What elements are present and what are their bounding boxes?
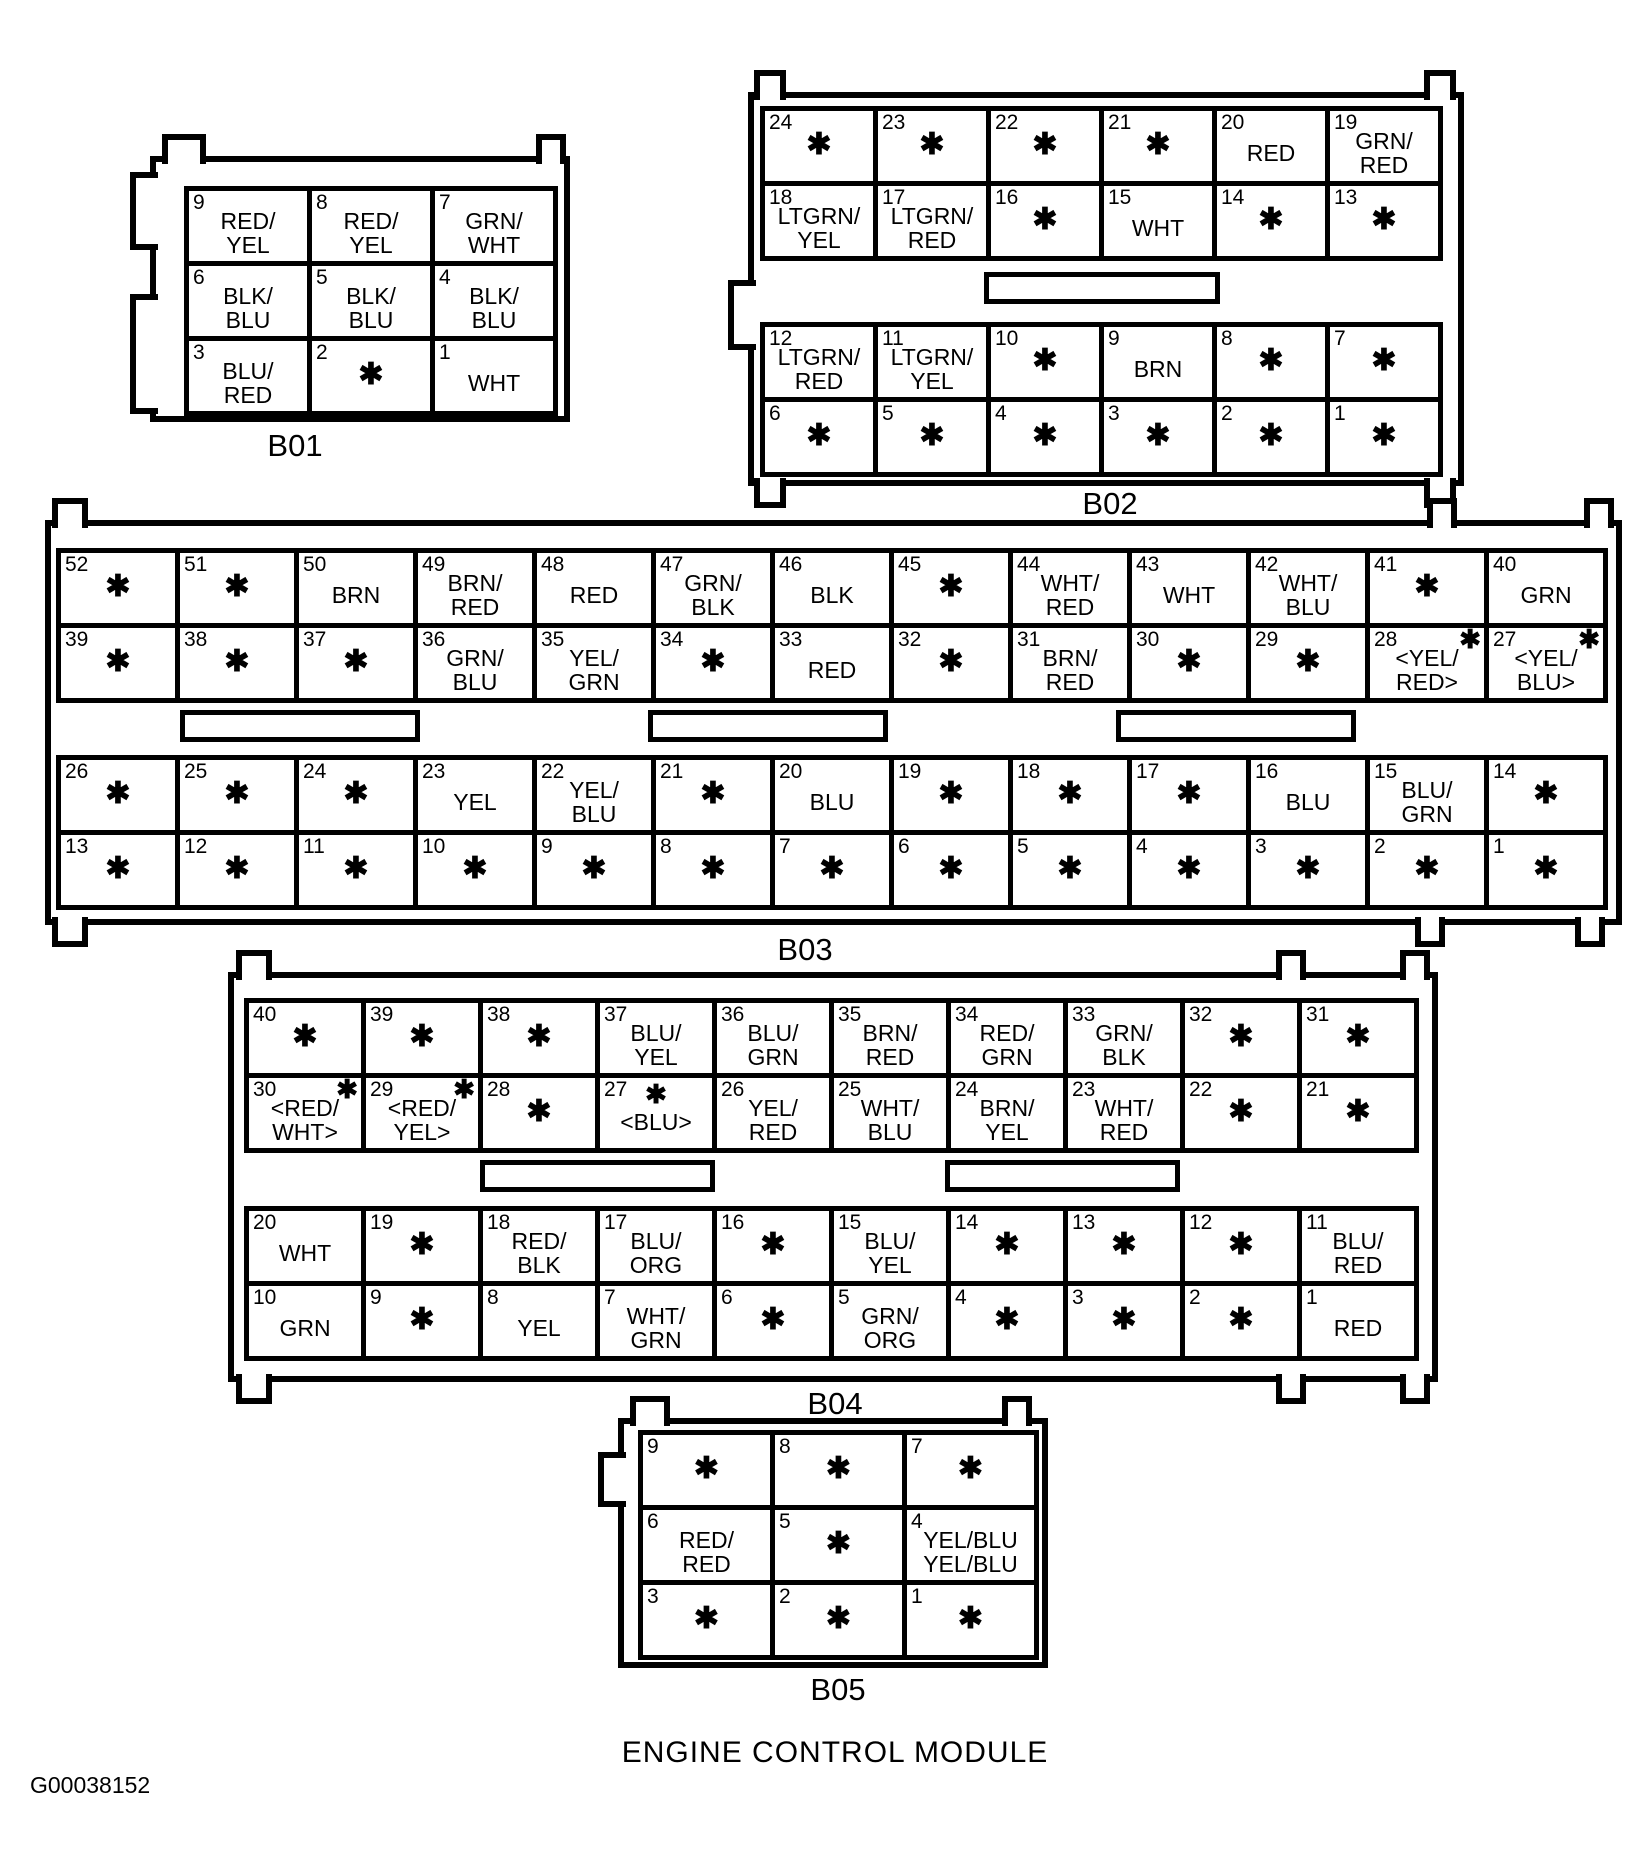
unused-pin-star: ✱	[224, 851, 249, 886]
pin-number: 28	[487, 1078, 510, 1102]
connector-b02-notch	[728, 280, 756, 350]
pin-number: 29	[1255, 628, 1278, 652]
connector-b02-tab	[754, 478, 786, 508]
pin-cell-B03-5: 5✱	[1013, 835, 1127, 905]
pin-cell-B04-4: 4✱	[951, 1286, 1063, 1356]
connector-b03-keyway-slot	[648, 710, 888, 742]
unused-pin-star: ✱	[826, 1451, 851, 1486]
wire-color-label: BLK/BLU	[435, 281, 553, 334]
unused-pin-star: ✱	[1371, 343, 1396, 378]
pin-number: 4	[1136, 835, 1148, 859]
wire-color-label: YEL	[418, 775, 532, 828]
unused-pin-star: ✱	[1228, 1019, 1253, 1054]
pin-cell-B04-25: 25WHT/BLU	[834, 1078, 946, 1148]
unused-pin-star: ✱	[343, 776, 368, 811]
connector-b03-keyway-slot	[180, 710, 420, 742]
connector-b04-tab	[1400, 950, 1430, 980]
pin-number: 22	[995, 111, 1018, 135]
unused-pin-star: ✱	[224, 644, 249, 679]
pin-number: 18	[1017, 760, 1040, 784]
pin-cell-B03-3: 3✱	[1251, 835, 1365, 905]
unused-pin-star: ✱	[1533, 851, 1558, 886]
pin-number: 9	[541, 835, 553, 859]
connector-b03-pin-grid: 26✱25✱24✱23YEL22YEL/BLU21✱20BLU19✱18✱17✱…	[56, 755, 1608, 910]
wire-color-label: WHT/RED	[1013, 568, 1127, 621]
pin-number: 31	[1306, 1003, 1329, 1027]
connector-b02-keyway-slot	[984, 272, 1220, 304]
wire-color-label: LTGRN/YEL	[765, 201, 873, 254]
pin-cell-B04-2: 2✱	[1185, 1286, 1297, 1356]
pin-number: 6	[898, 835, 910, 859]
connector-b03-tab	[1415, 917, 1445, 947]
pin-cell-B04-29: 29✱<RED/YEL>	[366, 1078, 478, 1148]
pin-number: 6	[769, 402, 781, 426]
unused-pin-star: ✱	[105, 776, 130, 811]
pin-number: 32	[1189, 1003, 1212, 1027]
wire-color-label: RED/BLK	[483, 1226, 595, 1279]
pin-cell-B01-1: 1WHT	[435, 341, 553, 411]
pin-cell-B03-2: 2✱	[1370, 835, 1484, 905]
pin-number: 39	[370, 1003, 393, 1027]
pin-cell-B04-28: 28✱	[483, 1078, 595, 1148]
unused-pin-star: ✱	[1111, 1227, 1136, 1262]
wire-color-label: BRN/RED	[1013, 643, 1127, 696]
pin-cell-B04-5: 5GRN/ORG	[834, 1286, 946, 1356]
pin-cell-B04-24: 24BRN/YEL	[951, 1078, 1063, 1148]
pin-cell-B03-41: 41✱	[1370, 553, 1484, 623]
pin-number: 1	[1334, 402, 1346, 426]
pin-cell-B03-44: 44WHT/RED	[1013, 553, 1127, 623]
wire-color-label: WHT/RED	[1068, 1093, 1180, 1146]
pin-number: 8	[660, 835, 672, 859]
unused-pin-star: ✱	[1176, 776, 1201, 811]
wire-color-label: LTGRN/YEL	[878, 342, 986, 395]
unused-pin-star: ✱	[694, 1601, 719, 1636]
wire-color-label: <RED/YEL>	[366, 1093, 478, 1146]
connector-b03-label: B03	[735, 932, 875, 968]
wire-color-label: BLK/BLU	[312, 281, 430, 334]
unused-pin-star: ✱	[1228, 1094, 1253, 1129]
unused-pin-star: ✱	[343, 851, 368, 886]
pin-cell-B04-38: 38✱	[483, 1003, 595, 1073]
pin-cell-B04-11: 11BLU/RED	[1302, 1211, 1414, 1281]
pin-number: 7	[1334, 327, 1346, 351]
unused-pin-star: ✱	[1145, 418, 1170, 453]
pin-cell-B03-21: 21✱	[656, 760, 770, 830]
pin-cell-B03-9: 9✱	[537, 835, 651, 905]
pin-cell-B05-7: 7✱	[907, 1435, 1034, 1505]
pin-cell-B04-22: 22✱	[1185, 1078, 1297, 1148]
pin-cell-B04-34: 34RED/GRN	[951, 1003, 1063, 1073]
wire-color-label: RED/YEL	[312, 206, 430, 259]
unused-pin-star: ✱	[819, 851, 844, 886]
wire-color-label: GRN	[1489, 568, 1603, 621]
wire-color-label: RED	[537, 568, 651, 621]
unused-pin-star: ✱	[645, 1079, 667, 1110]
connector-b04-pin-grid: 40✱39✱38✱37BLU/YEL36BLU/GRN35BRN/RED34RE…	[244, 998, 1419, 1153]
wire-color-label: RED/YEL	[189, 206, 307, 259]
unused-pin-star: ✱	[806, 127, 831, 162]
pin-cell-B03-13: 13✱	[61, 835, 175, 905]
pin-cell-B03-11: 11✱	[299, 835, 413, 905]
pin-cell-B04-40: 40✱	[249, 1003, 361, 1073]
unused-pin-star: ✱	[1057, 851, 1082, 886]
pin-number: 14	[1493, 760, 1516, 784]
pin-number: 3	[1255, 835, 1267, 859]
unused-pin-star: ✱	[292, 1019, 317, 1054]
connector-b02-label: B02	[1040, 486, 1180, 522]
pin-cell-B02-22: 22✱	[991, 111, 1099, 181]
unused-pin-star: ✱	[700, 644, 725, 679]
connector-b03-tab	[1584, 498, 1614, 528]
connector-b04-keyway-slot	[480, 1160, 715, 1192]
unused-pin-star: ✱	[1295, 851, 1320, 886]
connector-b03-keyway-slot	[1116, 710, 1356, 742]
connector-b04-keyway-slot	[945, 1160, 1180, 1192]
wire-color-label: BRN/YEL	[951, 1093, 1063, 1146]
pin-cell-B01-6: 6BLK/BLU	[189, 266, 307, 336]
pin-number: 2	[779, 1585, 791, 1609]
connector-b04-pin-grid: 20WHT19✱18RED/BLK17BLU/ORG16✱15BLU/YEL14…	[244, 1206, 1419, 1361]
pin-cell-B04-13: 13✱	[1068, 1211, 1180, 1281]
pin-cell-B04-23: 23WHT/RED	[1068, 1078, 1180, 1148]
pin-number: 2	[1374, 835, 1386, 859]
pin-cell-B03-35: 35YEL/GRN	[537, 628, 651, 698]
pin-cell-B01-7: 7GRN/WHT	[435, 191, 553, 261]
pin-number: 39	[65, 628, 88, 652]
pin-cell-B02-20: 20RED	[1217, 111, 1325, 181]
unused-pin-star: ✱	[409, 1227, 434, 1262]
pin-cell-B03-50: 50BRN	[299, 553, 413, 623]
pin-number: 52	[65, 553, 88, 577]
pin-cell-B04-37: 37BLU/YEL	[600, 1003, 712, 1073]
connector-b04-tab	[236, 950, 272, 980]
pin-number: 4	[995, 402, 1007, 426]
unused-pin-star: ✱	[409, 1019, 434, 1054]
pin-number: 9	[647, 1435, 659, 1459]
pin-number: 24	[303, 760, 326, 784]
pin-cell-B05-3: 3✱	[643, 1585, 770, 1655]
diagram-title: ENGINE CONTROL MODULE	[500, 1736, 1170, 1770]
wire-color-label: RED	[1217, 126, 1325, 179]
pin-cell-B03-39: 39✱	[61, 628, 175, 698]
pin-cell-B04-31: 31✱	[1302, 1003, 1414, 1073]
connector-b05-tab	[1002, 1396, 1032, 1426]
ecm-pinout-diagram: 9RED/YEL8RED/YEL7GRN/WHT6BLK/BLU5BLK/BLU…	[0, 0, 1631, 1874]
unused-pin-star: ✱	[700, 851, 725, 886]
unused-pin-star: ✱	[1258, 343, 1283, 378]
wire-color-label: RED/GRN	[951, 1018, 1063, 1071]
pin-number: 13	[1072, 1211, 1095, 1235]
pin-number: 3	[1108, 402, 1120, 426]
unused-pin-star: ✱	[105, 851, 130, 886]
unused-pin-star: ✱	[1228, 1302, 1253, 1337]
unused-pin-star: ✱	[1295, 644, 1320, 679]
pin-cell-B04-26: 26YEL/RED	[717, 1078, 829, 1148]
unused-pin-star: ✱	[105, 644, 130, 679]
pin-number: 9	[370, 1286, 382, 1310]
wire-color-label: BLU/RED	[1302, 1226, 1414, 1279]
pin-cell-B02-17: 17LTGRN/RED	[878, 186, 986, 256]
pin-cell-B03-1: 1✱	[1489, 835, 1603, 905]
pin-number: 7	[779, 835, 791, 859]
pin-number: 21	[1108, 111, 1131, 135]
pin-cell-B03-52: 52✱	[61, 553, 175, 623]
pin-cell-B03-49: 49BRN/RED	[418, 553, 532, 623]
pin-cell-B03-10: 10✱	[418, 835, 532, 905]
pin-number: 19	[898, 760, 921, 784]
wire-color-label: BLU/YEL	[600, 1018, 712, 1071]
unused-pin-star: ✱	[1345, 1094, 1370, 1129]
wire-color-label: <RED/WHT>	[249, 1093, 361, 1146]
pin-number: 22	[1189, 1078, 1212, 1102]
pin-number: 21	[1306, 1078, 1329, 1102]
wire-color-label: YEL/GRN	[537, 643, 651, 696]
pin-cell-B02-6: 6✱	[765, 402, 873, 472]
pin-cell-B04-9: 9✱	[366, 1286, 478, 1356]
pin-cell-B02-21: 21✱	[1104, 111, 1212, 181]
wire-color-label: BLK/BLU	[189, 281, 307, 334]
pin-number: 1	[1493, 835, 1505, 859]
unused-pin-star: ✱	[1228, 1227, 1253, 1262]
connector-b04-tab	[236, 1374, 272, 1404]
connector-b01-tab	[536, 134, 566, 164]
connector-b03-tab	[1427, 498, 1457, 528]
unused-pin-star: ✱	[919, 418, 944, 453]
pin-cell-B04-17: 17BLU/ORG	[600, 1211, 712, 1281]
pin-cell-B04-14: 14✱	[951, 1211, 1063, 1281]
unused-pin-star: ✱	[938, 569, 963, 604]
unused-pin-star: ✱	[760, 1302, 785, 1337]
connector-b02-pin-grid: 12LTGRN/RED11LTGRN/YEL10✱9BRN8✱7✱6✱5✱4✱3…	[760, 322, 1443, 477]
wire-color-label: WHT	[1132, 568, 1246, 621]
pin-cell-B05-4: 4YEL/BLUYEL/BLU	[907, 1510, 1034, 1580]
connector-b01-label: B01	[225, 428, 365, 464]
pin-cell-B03-24: 24✱	[299, 760, 413, 830]
pin-cell-B03-27: 27✱<YEL/BLU>	[1489, 628, 1603, 698]
unused-pin-star: ✱	[994, 1227, 1019, 1262]
pin-number: 27	[604, 1078, 627, 1102]
pin-cell-B03-8: 8✱	[656, 835, 770, 905]
unused-pin-star: ✱	[1032, 343, 1057, 378]
unused-pin-star: ✱	[1176, 851, 1201, 886]
pin-number: 11	[303, 835, 325, 859]
unused-pin-star: ✱	[1032, 127, 1057, 162]
pin-number: 16	[995, 186, 1018, 210]
wire-color-label: BLU/GRN	[1370, 775, 1484, 828]
pin-cell-B04-39: 39✱	[366, 1003, 478, 1073]
wire-color-label: BLU/ORG	[600, 1226, 712, 1279]
pin-cell-B03-25: 25✱	[180, 760, 294, 830]
unused-pin-star: ✱	[1032, 418, 1057, 453]
unused-pin-star: ✱	[958, 1601, 983, 1636]
wire-color-label: BLU/YEL	[834, 1226, 946, 1279]
pin-cell-B02-7: 7✱	[1330, 327, 1438, 397]
pin-cell-B02-24: 24✱	[765, 111, 873, 181]
pin-number: 38	[184, 628, 207, 652]
pin-cell-B03-7: 7✱	[775, 835, 889, 905]
connector-b03-tab	[52, 917, 88, 947]
wire-color-label: YEL/RED	[717, 1093, 829, 1146]
wire-color-label: <BLU>	[600, 1110, 712, 1146]
pin-number: 17	[1136, 760, 1159, 784]
pin-number: 8	[1221, 327, 1233, 351]
pin-number: 12	[184, 835, 207, 859]
pin-number: 12	[1189, 1211, 1212, 1235]
pin-cell-B04-19: 19✱	[366, 1211, 478, 1281]
wire-color-label: GRN/BLU	[418, 643, 532, 696]
pin-cell-B01-5: 5BLK/BLU	[312, 266, 430, 336]
pin-cell-B02-23: 23✱	[878, 111, 986, 181]
wire-color-label: RED	[775, 643, 889, 696]
wire-color-label: <YEL/RED>	[1370, 643, 1484, 696]
unused-pin-star: ✱	[526, 1019, 551, 1054]
pin-cell-B04-8: 8YEL	[483, 1286, 595, 1356]
pin-number: 6	[721, 1286, 733, 1310]
unused-pin-star: ✱	[1145, 127, 1170, 162]
wire-color-label: BRN/RED	[834, 1018, 946, 1071]
pin-cell-B01-8: 8RED/YEL	[312, 191, 430, 261]
pin-number: 19	[370, 1211, 393, 1235]
connector-b01-notch	[130, 294, 158, 414]
pin-cell-B04-16: 16✱	[717, 1211, 829, 1281]
pin-number: 21	[660, 760, 683, 784]
pin-number: 41	[1374, 553, 1397, 577]
unused-pin-star: ✱	[526, 1094, 551, 1129]
connector-b02-tab	[754, 70, 786, 100]
connector-b01-pin-grid: 9RED/YEL8RED/YEL7GRN/WHT6BLK/BLU5BLK/BLU…	[184, 186, 558, 416]
pin-number: 10	[422, 835, 445, 859]
wire-color-label: GRN	[249, 1301, 361, 1354]
pin-cell-B01-9: 9RED/YEL	[189, 191, 307, 261]
pin-cell-B04-20: 20WHT	[249, 1211, 361, 1281]
pin-number: 10	[995, 327, 1018, 351]
pin-number: 13	[1334, 186, 1357, 210]
pin-cell-B02-4: 4✱	[991, 402, 1099, 472]
unused-pin-star: ✱	[826, 1601, 851, 1636]
connector-b05-label: B05	[768, 1672, 908, 1708]
pin-number: 1	[911, 1585, 923, 1609]
pin-cell-B05-2: 2✱	[775, 1585, 902, 1655]
pin-number: 14	[1221, 186, 1244, 210]
wire-color-label: BLU	[775, 775, 889, 828]
unused-pin-star: ✱	[694, 1451, 719, 1486]
unused-pin-star: ✱	[938, 644, 963, 679]
pin-cell-B03-15: 15BLU/GRN	[1370, 760, 1484, 830]
wire-color-label: BLU	[1251, 775, 1365, 828]
connector-b03-pin-grid: 52✱51✱50BRN49BRN/RED48RED47GRN/BLK46BLK4…	[56, 548, 1608, 703]
wire-color-label: WHT/BLU	[1251, 568, 1365, 621]
pin-cell-B05-8: 8✱	[775, 1435, 902, 1505]
pin-cell-B04-15: 15BLU/YEL	[834, 1211, 946, 1281]
pin-number: 13	[65, 835, 88, 859]
wire-color-label: LTGRN/RED	[765, 342, 873, 395]
unused-pin-star: ✱	[1533, 776, 1558, 811]
connector-b02-pin-grid: 24✱23✱22✱21✱20RED19GRN/RED18LTGRN/YEL17L…	[760, 106, 1443, 261]
pin-cell-B02-15: 15WHT	[1104, 186, 1212, 256]
pin-cell-B02-1: 1✱	[1330, 402, 1438, 472]
wire-color-label: BRN/RED	[418, 568, 532, 621]
pin-cell-B02-12: 12LTGRN/RED	[765, 327, 873, 397]
pin-cell-B03-42: 42WHT/BLU	[1251, 553, 1365, 623]
pin-number: 16	[721, 1211, 744, 1235]
pin-cell-B03-19: 19✱	[894, 760, 1008, 830]
unused-pin-star: ✱	[358, 357, 383, 392]
unused-pin-star: ✱	[1032, 202, 1057, 237]
pin-cell-B02-2: 2✱	[1217, 402, 1325, 472]
unused-pin-star: ✱	[1414, 851, 1439, 886]
wire-color-label: WHT/BLU	[834, 1093, 946, 1146]
wire-color-label: GRN/RED	[1330, 126, 1438, 179]
wire-color-label: GRN/BLK	[1068, 1018, 1180, 1071]
unused-pin-star: ✱	[1111, 1302, 1136, 1337]
pin-cell-B02-3: 3✱	[1104, 402, 1212, 472]
pin-cell-B03-28: 28✱<YEL/RED>	[1370, 628, 1484, 698]
wire-color-label: YEL/BLUYEL/BLU	[907, 1525, 1034, 1578]
pin-cell-B03-26: 26✱	[61, 760, 175, 830]
pin-number: 14	[955, 1211, 978, 1235]
unused-pin-star: ✱	[700, 776, 725, 811]
unused-pin-star: ✱	[958, 1451, 983, 1486]
unused-pin-star: ✱	[938, 776, 963, 811]
pin-cell-B04-33: 33GRN/BLK	[1068, 1003, 1180, 1073]
pin-cell-B03-16: 16BLU	[1251, 760, 1365, 830]
unused-pin-star: ✱	[462, 851, 487, 886]
pin-cell-B02-13: 13✱	[1330, 186, 1438, 256]
pin-number: 23	[882, 111, 905, 135]
pin-cell-B04-27: 27✱<BLU>	[600, 1078, 712, 1148]
pin-cell-B04-36: 36BLU/GRN	[717, 1003, 829, 1073]
pin-cell-B02-14: 14✱	[1217, 186, 1325, 256]
pin-cell-B01-3: 3BLU/RED	[189, 341, 307, 411]
pin-number: 5	[779, 1510, 791, 1534]
pin-cell-B04-35: 35BRN/RED	[834, 1003, 946, 1073]
pin-cell-B02-11: 11LTGRN/YEL	[878, 327, 986, 397]
pin-cell-B04-10: 10GRN	[249, 1286, 361, 1356]
pin-number: 5	[882, 402, 894, 426]
pin-cell-B04-21: 21✱	[1302, 1078, 1414, 1148]
pin-number: 5	[1017, 835, 1029, 859]
unused-pin-star: ✱	[224, 569, 249, 604]
pin-cell-B03-20: 20BLU	[775, 760, 889, 830]
pin-cell-B04-6: 6✱	[717, 1286, 829, 1356]
connector-b04-tab	[1276, 1374, 1306, 1404]
wire-color-label: RED	[1302, 1301, 1414, 1354]
pin-cell-B01-4: 4BLK/BLU	[435, 266, 553, 336]
pin-cell-B03-46: 46BLK	[775, 553, 889, 623]
pin-cell-B02-8: 8✱	[1217, 327, 1325, 397]
pin-number: 37	[303, 628, 326, 652]
pin-cell-B04-7: 7WHT/GRN	[600, 1286, 712, 1356]
pin-cell-B02-5: 5✱	[878, 402, 986, 472]
pin-cell-B03-14: 14✱	[1489, 760, 1603, 830]
unused-pin-star: ✱	[760, 1227, 785, 1262]
unused-pin-star: ✱	[105, 569, 130, 604]
pin-number: 51	[184, 553, 207, 577]
pin-number: 38	[487, 1003, 510, 1027]
pin-cell-B03-47: 47GRN/BLK	[656, 553, 770, 623]
pin-number: 8	[779, 1435, 791, 1459]
wire-color-label: RED/RED	[643, 1525, 770, 1578]
pin-cell-B03-22: 22YEL/BLU	[537, 760, 651, 830]
wire-color-label: WHT/GRN	[600, 1301, 712, 1354]
pin-cell-B03-12: 12✱	[180, 835, 294, 905]
pin-cell-B03-32: 32✱	[894, 628, 1008, 698]
pin-number: 2	[1189, 1286, 1201, 1310]
wire-color-label: GRN/WHT	[435, 206, 553, 259]
pin-cell-B03-30: 30✱	[1132, 628, 1246, 698]
connector-b04-tab	[1400, 1374, 1430, 1404]
